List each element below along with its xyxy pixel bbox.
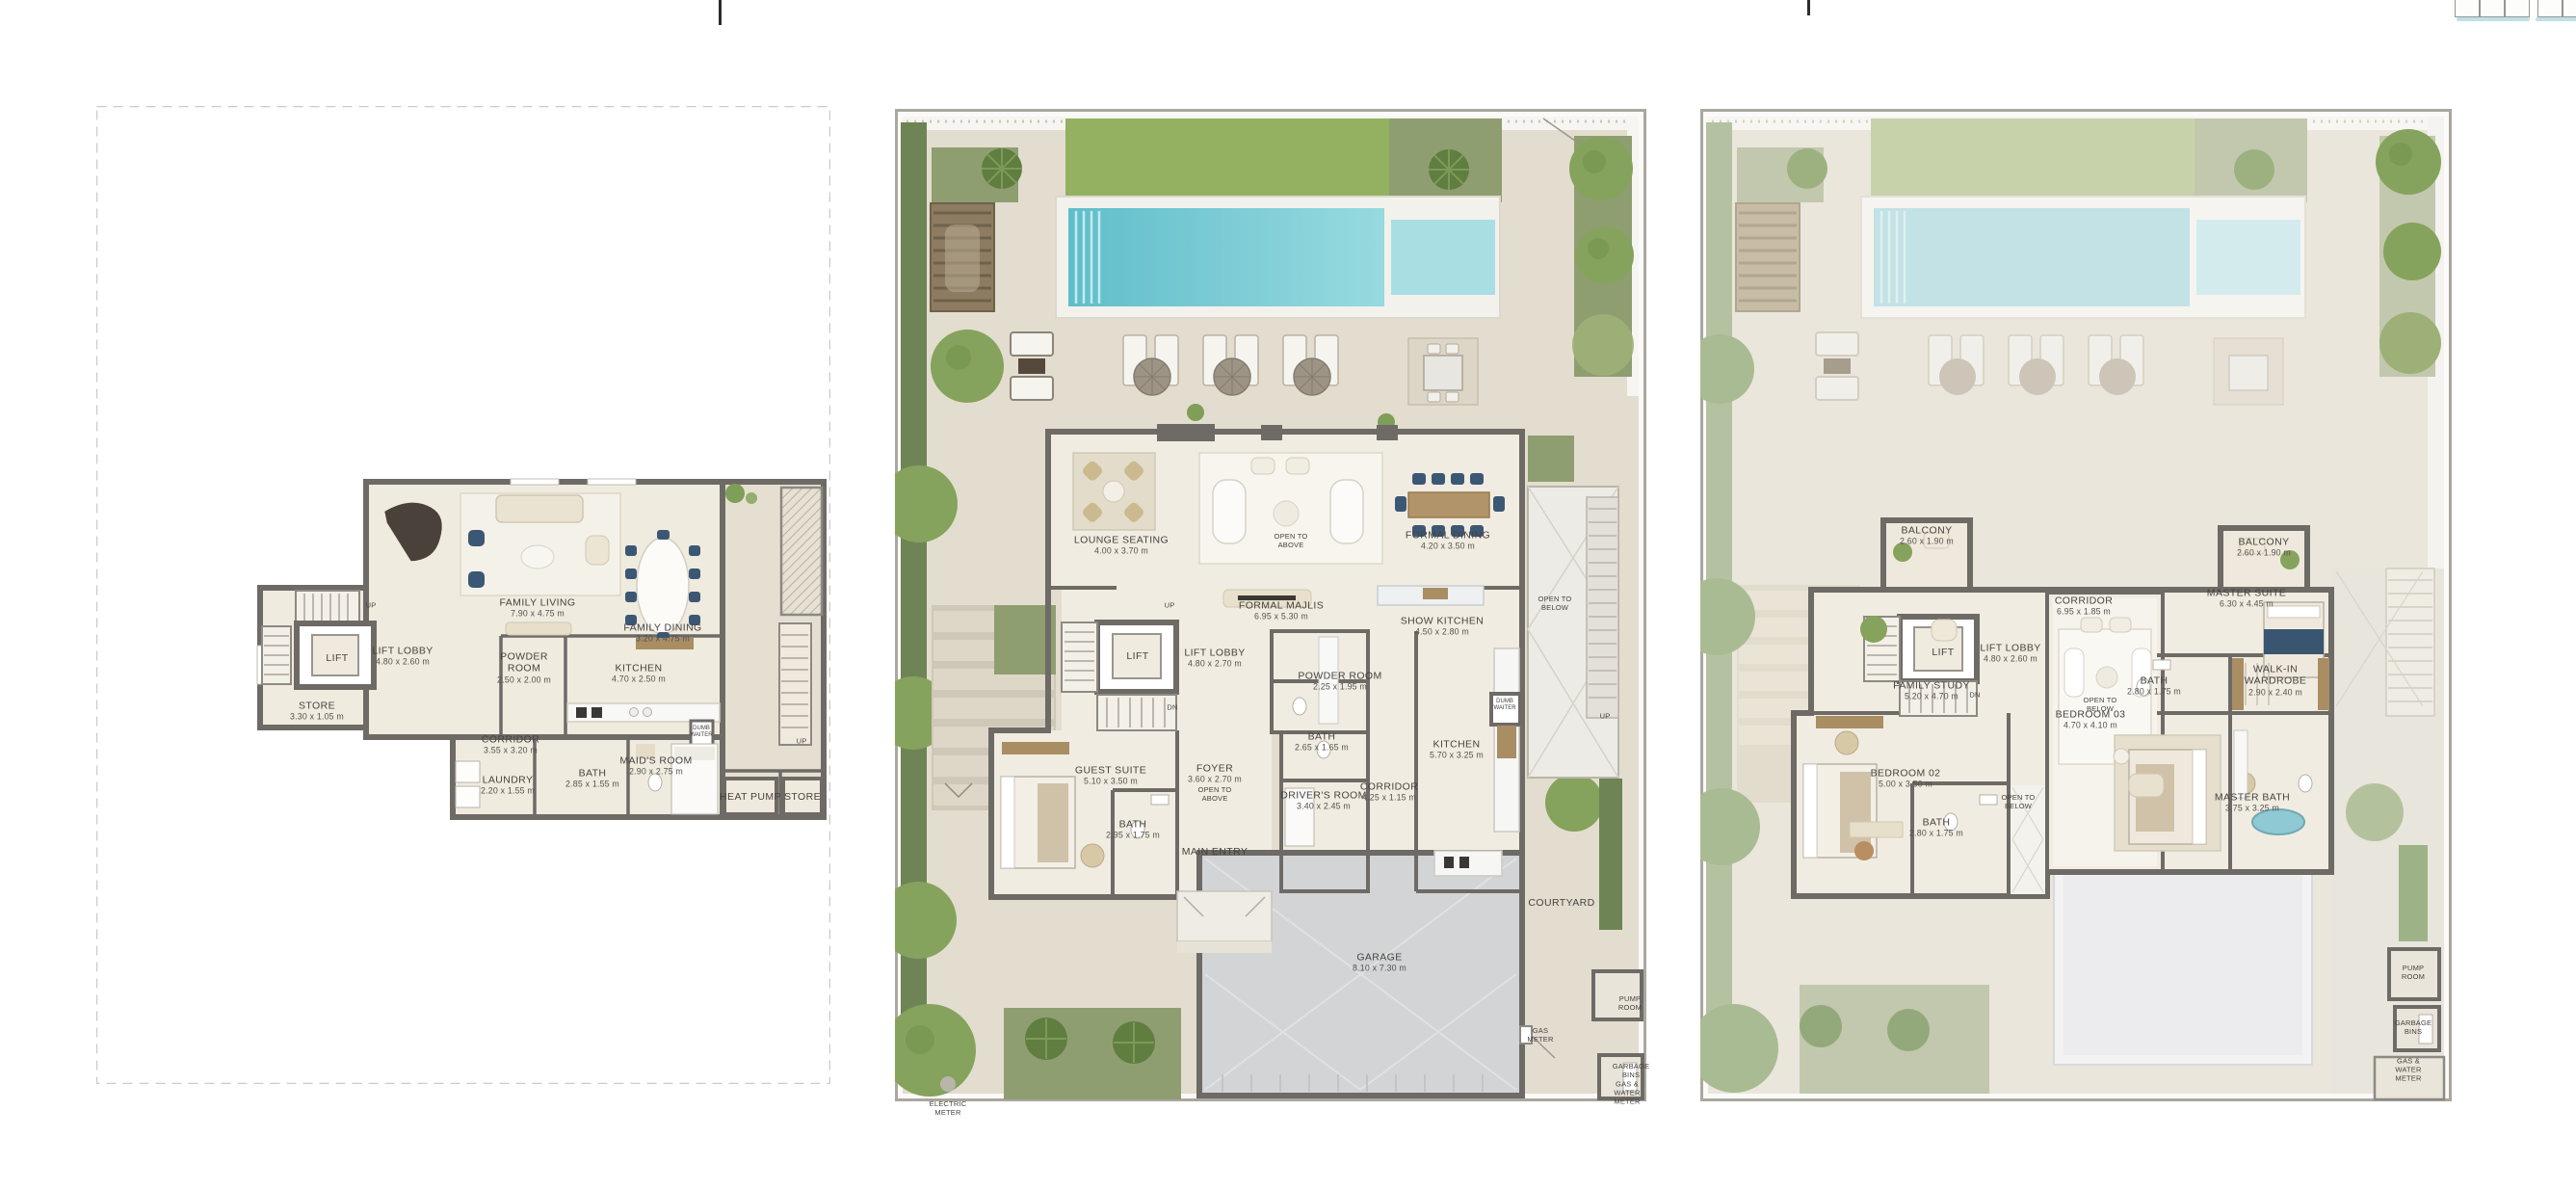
balcony-plant bbox=[1893, 542, 1912, 562]
sculpt-sofa bbox=[1213, 480, 1246, 543]
sink bbox=[1151, 795, 1169, 805]
sculpt-sofa bbox=[1330, 480, 1363, 543]
plant bbox=[746, 492, 757, 504]
spa-pool bbox=[1391, 220, 1495, 295]
page-crop-tick-right bbox=[1807, 0, 1810, 15]
planter-bottom bbox=[1004, 1008, 1181, 1099]
pump-room-box bbox=[1593, 971, 1642, 1019]
room-label-line: ELECTRIC bbox=[930, 1100, 967, 1109]
pool-area bbox=[1056, 197, 1500, 318]
outdoor-dining bbox=[1408, 338, 1478, 405]
wardrobe bbox=[1002, 742, 1069, 754]
bath-vanity bbox=[1319, 637, 1338, 724]
pool-faded bbox=[1874, 208, 2190, 306]
right-court bbox=[2331, 569, 2444, 1099]
basement-floor-plan bbox=[96, 106, 830, 1084]
swimming-pool bbox=[1068, 208, 1384, 306]
store-room bbox=[783, 779, 822, 814]
coffee-table bbox=[521, 545, 554, 569]
lawn-faded bbox=[1871, 119, 2195, 202]
page-crop-tick-left bbox=[719, 0, 722, 25]
pillow bbox=[674, 747, 715, 760]
floorplan-sheet: FAMILY LIVING7.90 x 4.75 mFAMILY DINING3… bbox=[0, 0, 2576, 1190]
console bbox=[506, 622, 571, 635]
heat-pump-room bbox=[724, 779, 776, 814]
plant bbox=[725, 484, 745, 503]
armchair bbox=[586, 536, 609, 565]
dining-table bbox=[637, 538, 689, 634]
electric-meter-box bbox=[940, 1076, 956, 1092]
courtyard-tree bbox=[1545, 774, 1603, 832]
pump-room-box bbox=[2389, 949, 2439, 999]
terrace bbox=[2054, 848, 2312, 1065]
ground-drawing bbox=[895, 109, 1646, 1101]
sketch-squares-group-1 bbox=[2455, 0, 2530, 17]
courtyard-hedge bbox=[1599, 779, 1622, 930]
wardrobe bbox=[1816, 716, 1883, 728]
dumb-waiter-box bbox=[1491, 694, 1520, 725]
study-plant bbox=[1860, 616, 1887, 643]
armchair-navy bbox=[468, 571, 485, 588]
cutoff-site-sketch bbox=[2455, 0, 2576, 25]
toilet bbox=[1131, 821, 1144, 838]
bedroom-sofa bbox=[2129, 774, 2164, 797]
gas-meter-box bbox=[1520, 1026, 1532, 1044]
lawn bbox=[1065, 119, 1389, 202]
garbage-bin bbox=[1623, 1063, 1637, 1092]
garage bbox=[1199, 853, 1522, 1096]
washer bbox=[456, 761, 480, 782]
sketch-water-line bbox=[2536, 17, 2576, 21]
dumb-waiter-box bbox=[691, 721, 713, 745]
ground-floor-plan bbox=[895, 109, 1646, 1101]
study-armchair bbox=[1932, 620, 1957, 641]
sketch-water-line bbox=[2457, 17, 2530, 21]
trees-right bbox=[2376, 129, 2441, 377]
sketch-square bbox=[2537, 0, 2563, 17]
first-floor-plan bbox=[1700, 109, 2452, 1101]
room-label-ground-electric-meter: ELECTRICMETER bbox=[930, 1100, 967, 1118]
guest-chair bbox=[1081, 844, 1104, 867]
sketch-square bbox=[2505, 0, 2530, 17]
main-entry-area bbox=[1177, 891, 1272, 953]
basement-lift bbox=[297, 623, 374, 687]
drivers-bed bbox=[1285, 788, 1314, 846]
toilet bbox=[648, 774, 662, 791]
vanity bbox=[2234, 730, 2247, 798]
formal-dining-table bbox=[1408, 492, 1489, 517]
room-label-line: METER bbox=[934, 1109, 960, 1118]
pergola bbox=[931, 203, 994, 311]
sketch-square bbox=[2563, 0, 2576, 17]
pergola-daybed bbox=[945, 225, 980, 292]
sketch-square bbox=[2455, 0, 2480, 17]
bathtub bbox=[2252, 809, 2304, 834]
sofa bbox=[496, 495, 583, 522]
terrace-stairs bbox=[779, 623, 811, 745]
basement-drawing bbox=[96, 106, 830, 1084]
navy-throw bbox=[2264, 629, 2324, 654]
cabinet-wood bbox=[636, 638, 694, 649]
sketch-square bbox=[2480, 0, 2505, 17]
first-drawing bbox=[1700, 109, 2452, 1101]
armchair-navy bbox=[468, 530, 485, 546]
sketch-squares-group-2 bbox=[2537, 0, 2576, 17]
gas-water-meter-box bbox=[2375, 1057, 2444, 1099]
study-desk bbox=[1850, 822, 1903, 837]
entry-void bbox=[2011, 785, 2045, 894]
garbage-bin bbox=[2419, 1015, 2432, 1044]
balcony-plant bbox=[2280, 550, 2300, 569]
side-table bbox=[636, 744, 655, 759]
hatched-store bbox=[781, 488, 822, 615]
dryer bbox=[456, 786, 480, 807]
